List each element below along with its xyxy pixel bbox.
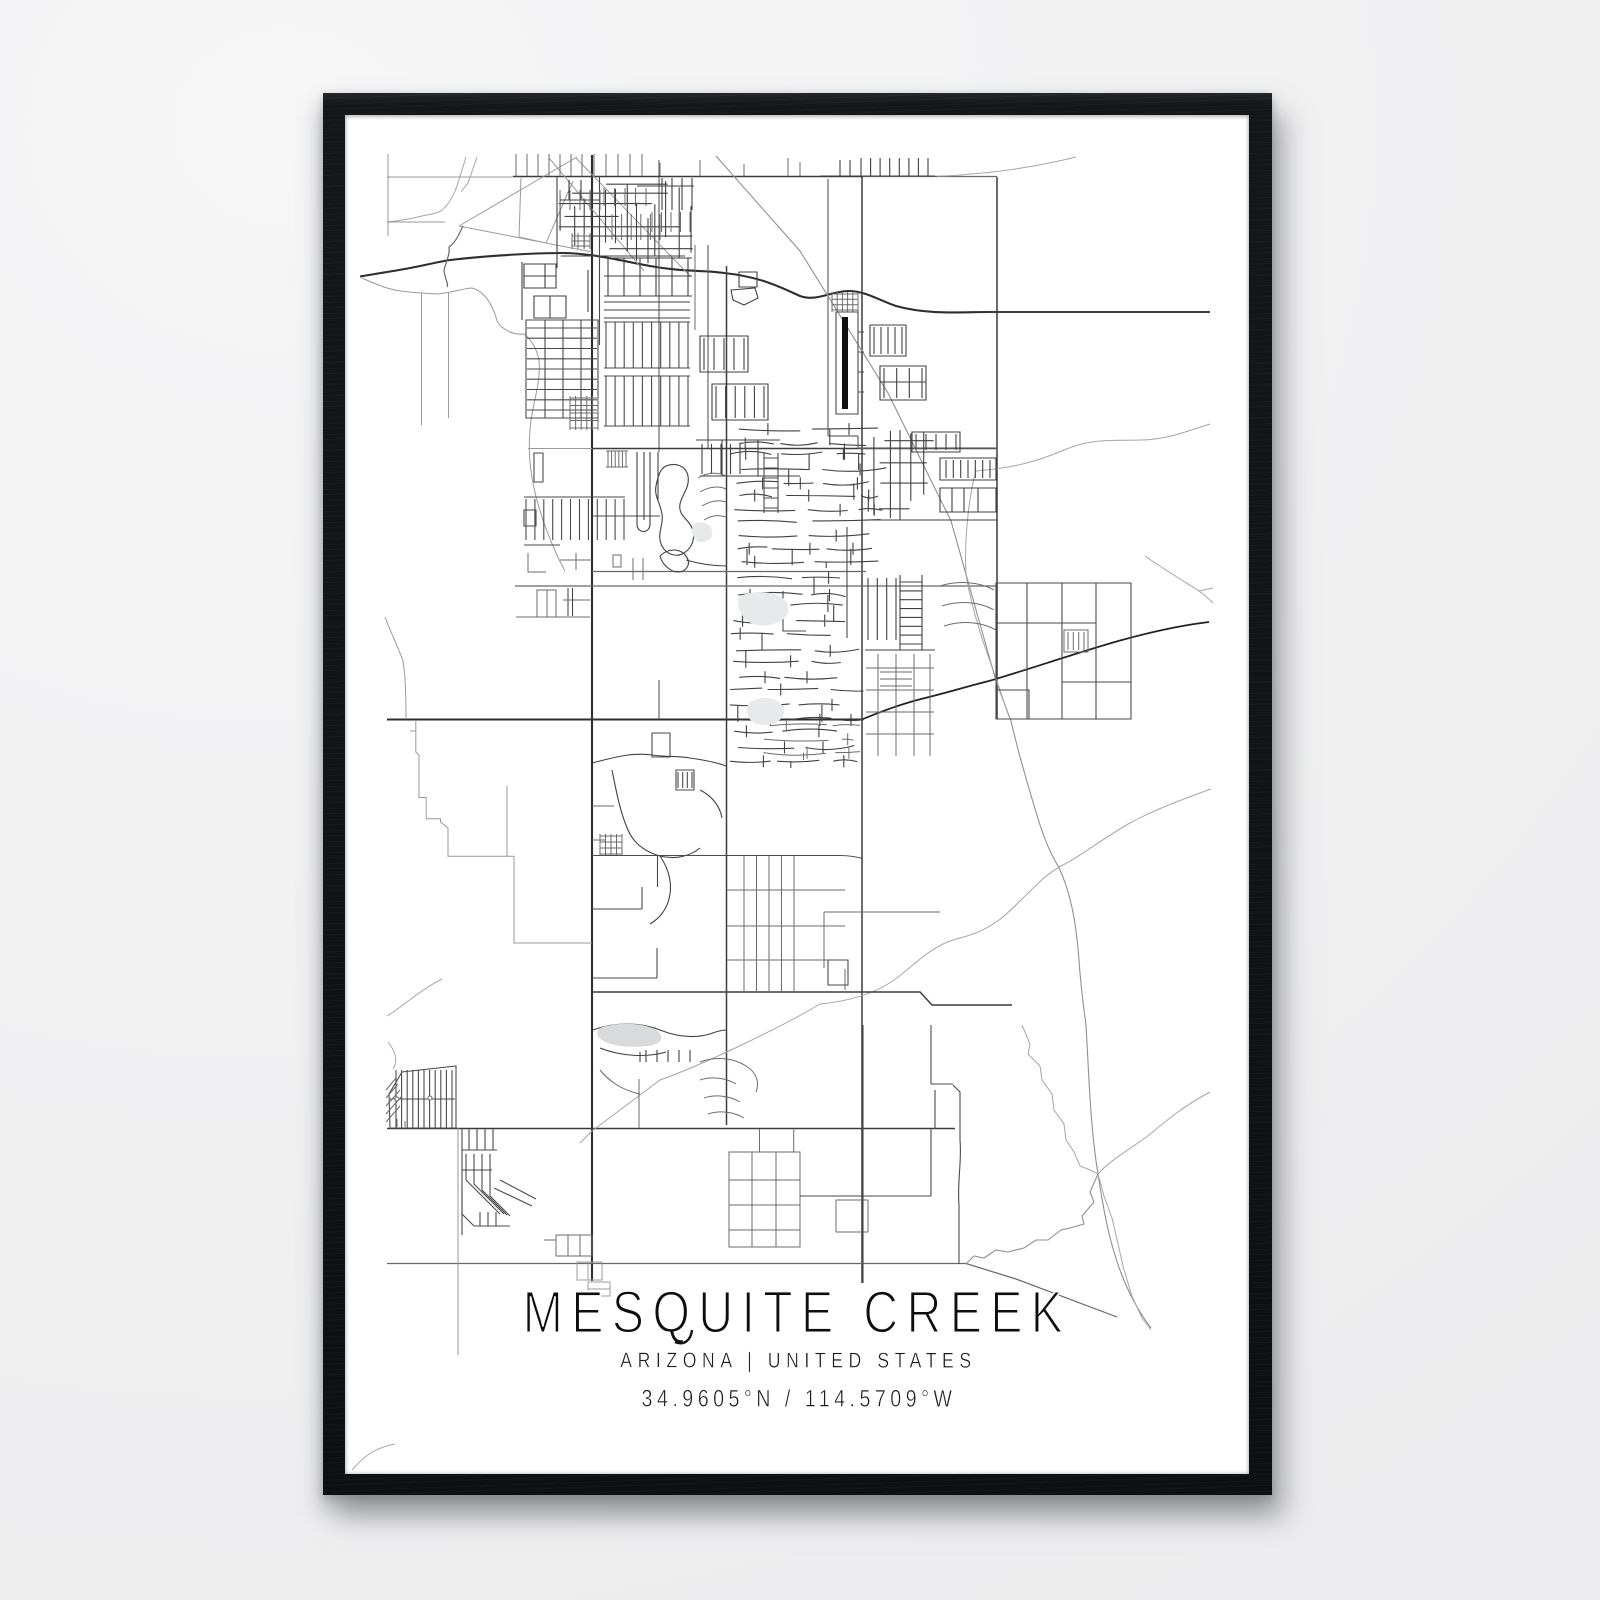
svg-text:MESQUITE CREEK: MESQUITE CREEK — [523, 1280, 1072, 1346]
svg-text:ARIZONA | UNITED STATES: ARIZONA | UNITED STATES — [620, 1349, 976, 1373]
svg-text:34.9605°N / 114.5709°W: 34.9605°N / 114.5709°W — [642, 1385, 957, 1413]
